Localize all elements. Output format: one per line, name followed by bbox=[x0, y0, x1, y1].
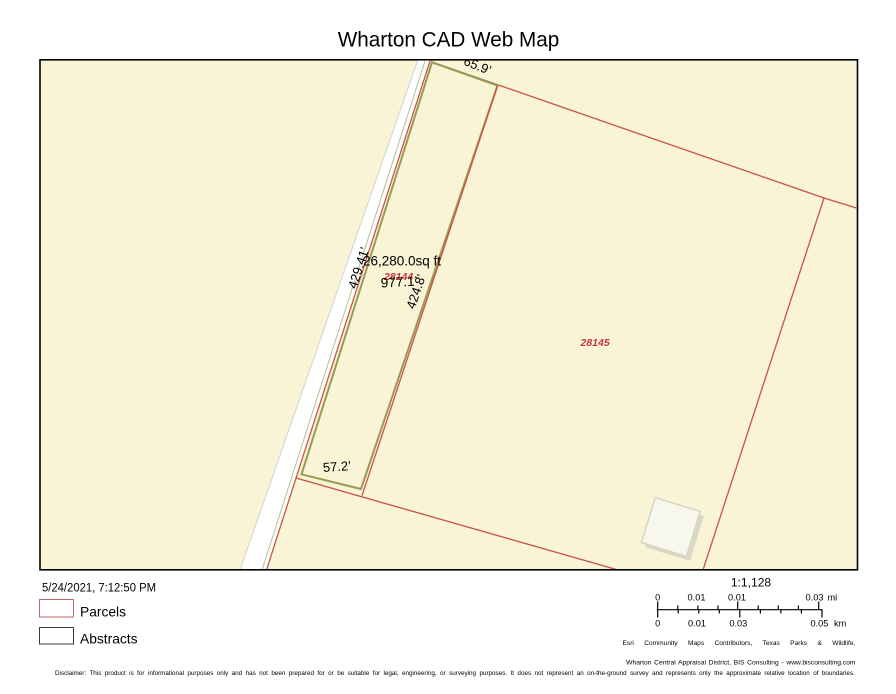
svg-text:0.01: 0.01 bbox=[688, 619, 706, 629]
svg-text:0.03: 0.03 bbox=[729, 619, 747, 629]
svg-text:0.01: 0.01 bbox=[688, 593, 706, 603]
svg-text:0.03: 0.03 bbox=[806, 593, 824, 603]
svg-text:0.01: 0.01 bbox=[728, 593, 746, 603]
svg-text:0.05: 0.05 bbox=[810, 619, 828, 629]
svg-text:5/24/2021, 7:12:50 PM: 5/24/2021, 7:12:50 PM bbox=[42, 583, 156, 595]
svg-text:Disclaimer: This product is fo: Disclaimer: This product is for informat… bbox=[55, 670, 855, 677]
svg-text:Abstracts: Abstracts bbox=[80, 632, 138, 647]
svg-text:57.2’: 57.2’ bbox=[322, 458, 351, 475]
svg-text:mi: mi bbox=[828, 593, 838, 603]
svg-text:Esri Community Maps Contributo: Esri Community Maps Contributors, Texas … bbox=[623, 640, 856, 647]
svg-text:km: km bbox=[834, 619, 847, 629]
svg-text:28145: 28145 bbox=[580, 337, 610, 349]
svg-text:Wharton Central Appraisal Dist: Wharton Central Appraisal District, BIS … bbox=[626, 659, 856, 666]
svg-text:0: 0 bbox=[655, 593, 660, 603]
svg-text:977.1’: 977.1’ bbox=[380, 274, 418, 291]
svg-text:0: 0 bbox=[655, 619, 660, 629]
svg-text:Wharton CAD Web Map: Wharton CAD Web Map bbox=[338, 28, 560, 51]
svg-text:Parcels: Parcels bbox=[80, 605, 126, 620]
svg-text:26,280.0sq ft: 26,280.0sq ft bbox=[363, 254, 441, 269]
svg-text:1:1,128: 1:1,128 bbox=[731, 576, 772, 590]
